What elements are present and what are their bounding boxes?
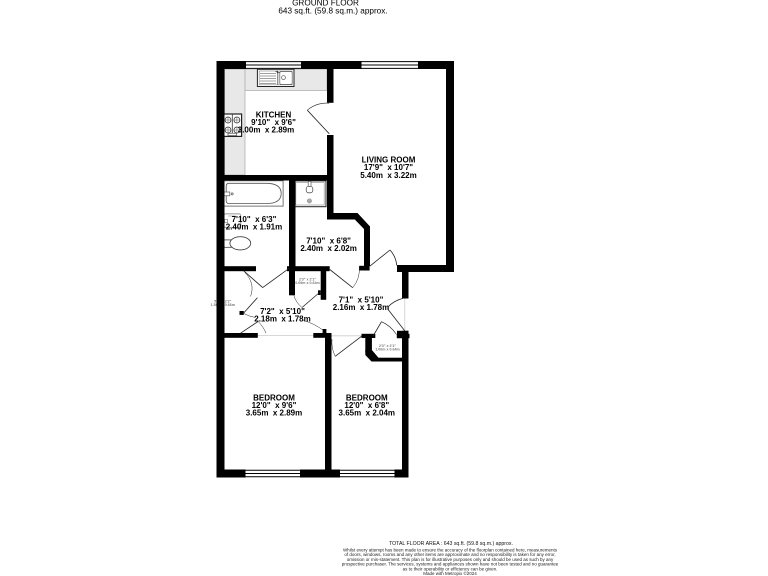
svg-text:2.40m x 1.91m: 2.40m x 1.91m (226, 222, 282, 231)
svg-text:0.69m x 0.64m: 0.69m x 0.64m (295, 281, 319, 285)
svg-text:1.00m x 0.64m: 1.00m x 0.64m (375, 347, 399, 351)
svg-text:643 sq.ft. (59.8 sq.m.) approx: 643 sq.ft. (59.8 sq.m.) approx. (278, 6, 387, 15)
svg-text:2.16m x 1.78m: 2.16m x 1.78m (333, 303, 389, 312)
svg-text:2.40m x 2.02m: 2.40m x 2.02m (300, 244, 356, 253)
svg-text:2.18m x 1.78m: 2.18m x 1.78m (254, 314, 310, 323)
svg-text:TOTAL FLOOR AREA : 643 sq.ft.: TOTAL FLOOR AREA : 643 sq.ft. (59.8 sq.m… (389, 541, 513, 547)
svg-text:5.40m x 3.22m: 5.40m x 3.22m (360, 171, 416, 180)
svg-text:3.00m x 2.89m: 3.00m x 2.89m (238, 126, 294, 135)
svg-text:3.65m x 2.89m: 3.65m x 2.89m (246, 409, 302, 418)
svg-text:Made with Metropix ©2024: Made with Metropix ©2024 (423, 570, 477, 576)
svg-text:3.65m x 2.04m: 3.65m x 2.04m (339, 409, 395, 418)
